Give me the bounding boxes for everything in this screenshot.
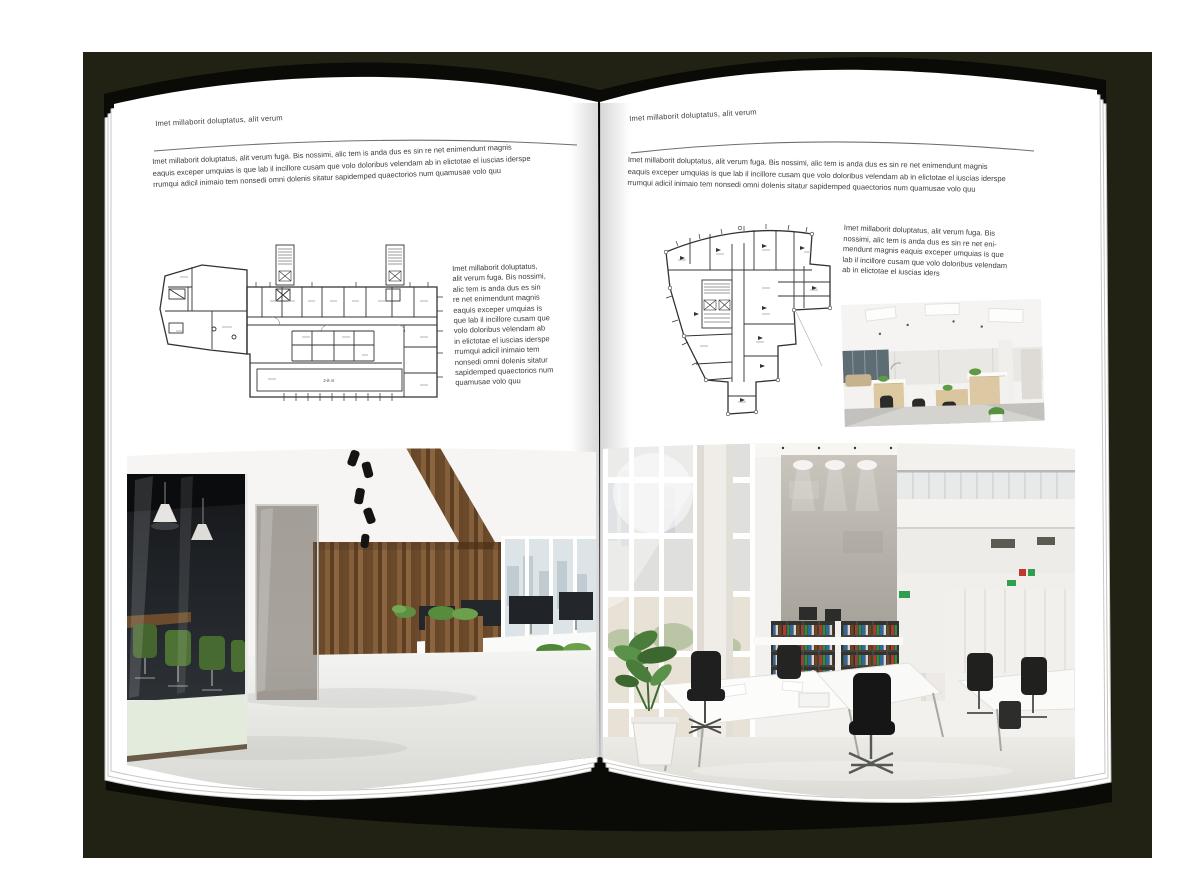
white-cabinets [945,589,1075,673]
lounge-sofa [845,374,871,387]
left-office-photo [127,446,596,796]
right-page-caption: Imet millaborit doluptatus, alit verum f… [842,223,1044,284]
right-office-photo [603,441,1075,801]
glass-partition [255,504,319,700]
plan-room-labels [678,250,818,402]
mezzanine [897,441,1075,573]
right-floor-plan [644,216,838,418]
concrete-wall [781,455,897,621]
left-page-caption: Imet millaborit doluptatus, alit verum f… [452,260,591,389]
left-floor-plan: 2-й эт [152,227,444,415]
glass-meeting-room [127,474,248,762]
floor-plan-hall-label: 2-й эт [323,378,334,383]
waste-bin [999,701,1021,729]
door-area [1020,349,1042,400]
small-office-photo [841,299,1045,427]
magazine-spread-mockup: Imet millaborit doluptatus, alit verum I… [0,0,1200,891]
